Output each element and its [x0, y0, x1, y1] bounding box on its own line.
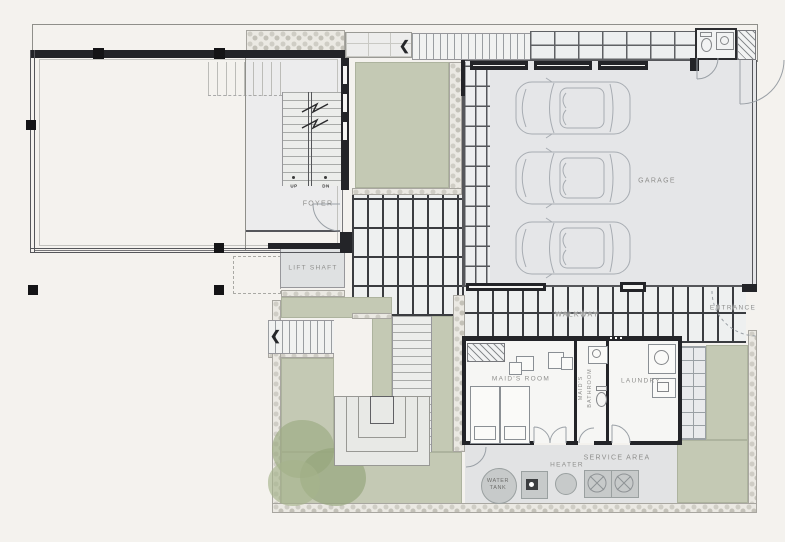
- vent-dot: [610, 337, 612, 339]
- column: [214, 243, 224, 253]
- site-boundary-left: [32, 24, 33, 52]
- foyer-bottom-wall: [246, 230, 340, 232]
- column: [93, 48, 104, 59]
- bottom-wall-b: [566, 441, 578, 445]
- garage-door-1-slot: [473, 65, 525, 66]
- foyer-left-wall: [245, 58, 246, 250]
- water-tank-word1: WATER: [487, 478, 509, 484]
- entry-jamb: [690, 58, 699, 71]
- garden-strip-right: [430, 316, 453, 452]
- pavilion-left-wall: [30, 50, 35, 253]
- entrance-label: ENTRANCE: [710, 305, 756, 312]
- lift-shaft-label: LIFT SHAFT: [288, 265, 337, 272]
- pillow: [504, 426, 526, 440]
- maids-bathroom-label-1: MAID'S: [578, 376, 584, 400]
- column: [214, 48, 225, 59]
- stair-rail-2: [311, 92, 312, 186]
- bathroom-left-wall: [574, 341, 577, 441]
- driveway-pavers: [530, 31, 695, 60]
- bottom-wall-d: [630, 441, 682, 445]
- walkway-edge: [352, 313, 392, 319]
- washer-drum-icon: [654, 350, 669, 365]
- louver-slot: [343, 66, 347, 84]
- column: [214, 285, 224, 295]
- maids-right-wall: [678, 336, 682, 445]
- setback-dashed-outline: [233, 256, 281, 294]
- garage-service-door-slot: [623, 285, 643, 289]
- entry-mat: [737, 30, 756, 60]
- foyer-label: FOYER: [303, 201, 334, 208]
- water-tank-label: WATER TANK: [487, 478, 509, 492]
- foyer-right-wall: [341, 150, 349, 190]
- maids-left-wall: [462, 341, 466, 445]
- column: [28, 285, 38, 295]
- landing-step-4: [370, 396, 394, 424]
- site-boundary-right: [757, 24, 758, 62]
- chair: [561, 357, 573, 370]
- pump-icon-dot: [529, 482, 534, 487]
- service-area-label: SERVICE AREA: [584, 455, 651, 462]
- louver-slot: [343, 94, 347, 112]
- laundry-label: LAUNDRY: [621, 378, 661, 385]
- stair-rail-1: [308, 92, 309, 186]
- pavilion-top-wall: [30, 50, 345, 58]
- heater: [555, 473, 577, 495]
- garage-right-wall: [752, 60, 757, 287]
- floor-plan: ❮ GARAGE UP DN FOYER LIFT SHAFT: [0, 0, 785, 542]
- tree-foliage: [268, 460, 320, 506]
- stair-up-label: UP: [290, 184, 297, 189]
- toilet-tank: [700, 32, 712, 37]
- walkway-label: WALKWAY: [555, 312, 599, 319]
- garage-side-path: [464, 62, 490, 287]
- vent-dot: [620, 337, 622, 339]
- water-tank-word2: TANK: [490, 485, 507, 491]
- garden-stair-arrow-icon: ❮: [270, 329, 281, 342]
- bath-toilet-tank: [596, 386, 607, 391]
- ac-condenser-1: [584, 470, 612, 498]
- bottom-wall-c: [594, 441, 612, 445]
- toilet-bowl-icon: [701, 38, 712, 52]
- louver-slot: [343, 122, 347, 140]
- vent-dot: [615, 337, 617, 339]
- foyer-stair: [282, 92, 343, 186]
- garden-east: [706, 345, 748, 440]
- walkway-horizontal: [462, 287, 746, 343]
- bath-sink-icon: [592, 349, 601, 358]
- driveway-ramp: [412, 33, 530, 60]
- chair: [509, 362, 522, 375]
- garage-bottom-louver-slot: [469, 286, 543, 288]
- garage-left-jamb: [461, 60, 465, 96]
- lift-top-wall: [268, 243, 345, 249]
- entrance-door-panel: [742, 284, 757, 292]
- maids-top-wall: [462, 336, 682, 341]
- stair-dn-dot: [324, 176, 327, 179]
- ramp-direction-arrow-icon: ❮: [399, 39, 410, 52]
- bath-toilet-bowl-icon: [596, 392, 607, 407]
- stair-dn-label: DN: [322, 184, 330, 189]
- ac-condenser-2: [611, 470, 639, 498]
- heater-label: HEATER: [550, 462, 584, 469]
- garage-door-2-slot: [537, 65, 589, 66]
- planter-court: [355, 62, 449, 188]
- lift-edge-cobble: [281, 290, 345, 297]
- column: [26, 120, 36, 130]
- planter-edge-bottom: [352, 188, 462, 195]
- stepping-stones: [678, 346, 706, 440]
- basin-icon: [720, 36, 729, 45]
- garage-label: GARAGE: [638, 178, 676, 185]
- garden-east-border: [748, 330, 757, 512]
- garden-east-bottom: [677, 440, 748, 503]
- stair-up-dot: [292, 176, 295, 179]
- closet: [467, 343, 505, 362]
- pillow: [474, 426, 496, 440]
- maids-room-label: MAID'S ROOM: [492, 376, 550, 383]
- garage-door-3-slot: [601, 65, 645, 66]
- maids-bathroom-label-2: BATHROOM: [587, 368, 593, 407]
- garage-room: [462, 60, 757, 287]
- site-boundary-top: [32, 24, 758, 25]
